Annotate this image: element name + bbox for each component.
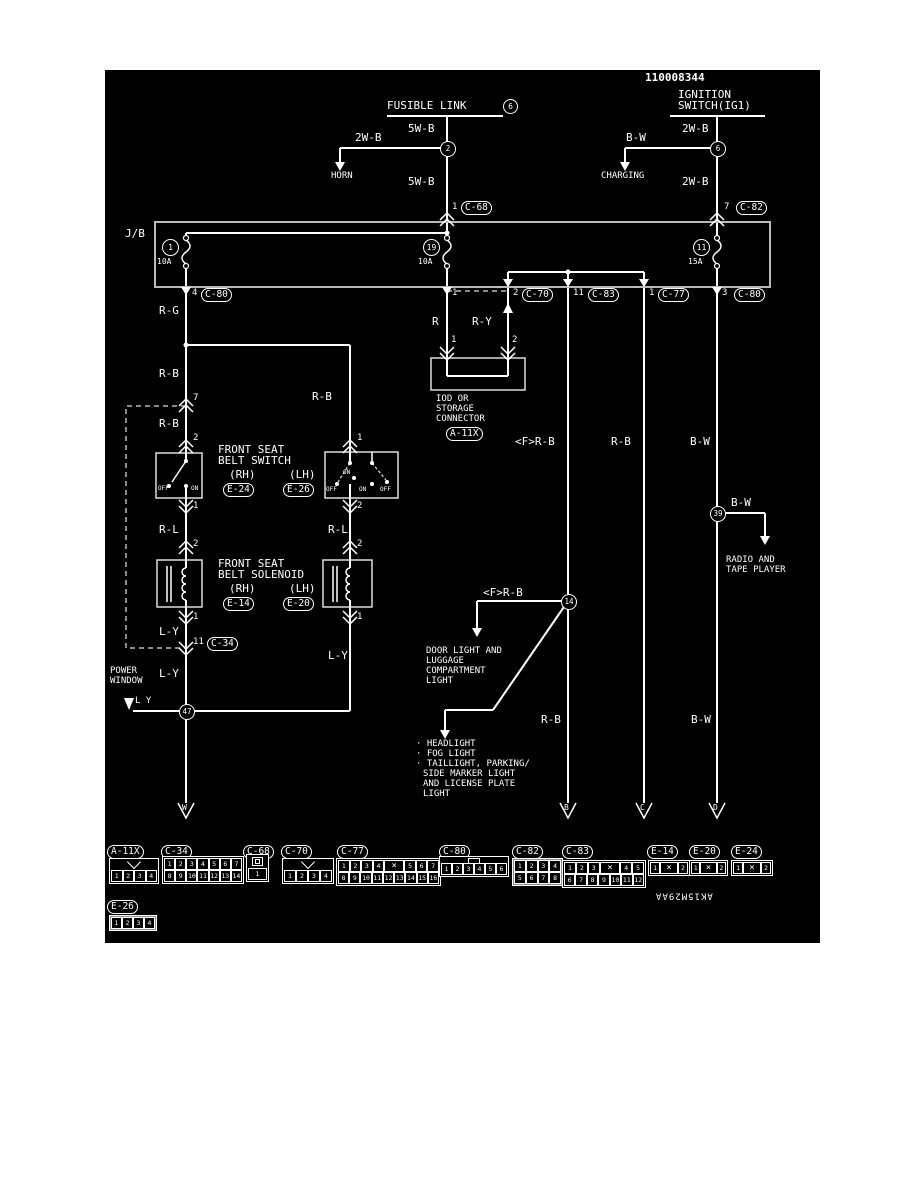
connector-pin: 9 [598,874,609,886]
pinout-label-c83: C-83 [562,845,593,859]
connector-notch [127,855,141,869]
jb-exit-pin-3: 3 [722,289,727,298]
wire-label-r: R [432,316,439,328]
solenoid-rh-pin-in: 2 [193,540,198,549]
connector-pin: 5 [514,872,526,884]
lh-switch-off-1: OFF [326,487,337,493]
jb-bracket [508,272,644,287]
charging-arrow [620,162,630,171]
connector-pin: 16 [428,872,439,884]
connector-keyway: × [384,860,404,872]
wire-label-rl-rh: R-L [159,524,179,536]
connector-pin: 1 [248,868,267,880]
connector-pin: 6 [526,872,538,884]
wire-label-rb-bottom: R-B [541,714,561,726]
connector-pin: 3 [463,863,474,875]
lights-list-6: LIGHT [423,790,450,799]
connector-pin: 4 [474,863,485,875]
pin-7-c82: 7 [724,203,729,212]
connector-pin: 2 [576,862,588,874]
connector-pin: 4 [549,860,561,872]
wire-label-rg: R-G [159,305,179,317]
connector-keyway: × [600,862,621,874]
connector-pin: 9 [175,870,186,882]
connector-pin: 8 [164,870,175,882]
connector-pin: 8 [338,872,349,884]
connector-pin: 6 [416,860,428,872]
pinout-label-c77: C-77 [337,845,368,859]
wire-label-frb-branch: <F>R-B [483,587,523,599]
connector-pin: 11 [621,874,632,886]
connector-pin: 13 [394,872,405,884]
connector-ref-c80-left: C-80 [201,288,232,302]
pinout-label-e24: E-24 [731,845,762,859]
wire-label-2wb-horn: 2W-B [355,132,382,144]
connector-pin: 2 [526,860,538,872]
connector-ref-a11x: A-11X [446,427,483,441]
junction-block-label: J/B [125,228,145,240]
switch-lh-tag: (LH) [289,469,316,481]
jb-exit-pin-2: 2 [513,289,518,298]
wire-label-bw-radio: B-W [731,497,751,509]
inline-pin-7: 7 [193,394,198,403]
pinout-c77: 1234×5678910111213141516 [336,858,441,886]
junction-14: 14 [561,594,577,610]
connector-pin: 3 [133,917,144,929]
solenoid-title-2: BELT SOLENOID [218,569,304,581]
pinout-c80: 123456 [439,856,509,877]
ry-up-arrow [503,303,513,313]
connector-pin: 3 [308,870,320,882]
lh-switch-on-2: ON [359,487,366,493]
connector-ref-e26: E-26 [283,483,314,497]
connector-pin: 13 [220,870,231,882]
wire-label-5wb-2: 5W-B [408,176,435,188]
wire-label-ly-2: L-Y [159,668,179,680]
fuse-1-rating: 10A [157,258,171,266]
pinout-e14: 1×2 [648,860,690,876]
connector-pin: 5 [632,862,644,874]
connector-pin: 8 [549,872,561,884]
page-ref-c: C [640,804,645,812]
connector-pin: 3 [134,870,146,882]
switch-rh-tag: (RH) [229,469,256,481]
connector-ref-e14: E-14 [223,597,254,611]
wire-label-2wb-2: 2W-B [682,176,709,188]
jb-exit-pin-4: 4 [192,289,197,298]
pinout-c68: 1 [246,854,269,882]
connector-pin: 6 [564,874,575,886]
wire-charging-branch [625,148,717,162]
connector-ref-e24: E-24 [223,483,254,497]
connector-face [252,857,263,866]
pinout-e24: 1×2 [731,860,773,876]
connector-pin: 2 [122,917,133,929]
power-window-arrow [124,698,134,710]
connector-pin: 6 [496,863,507,875]
pin-1-c68: 1 [452,203,457,212]
connector-ref-c82: C-82 [736,201,767,215]
connector-pin: 10 [610,874,621,886]
connector-pin: 12 [383,872,394,884]
connector-pin: 2 [123,870,135,882]
pinout-c83: 123×456789101112 [562,860,646,888]
solenoid-rh-pin-out: 1 [193,613,198,622]
fuse11-element [713,240,721,264]
pinout-e26: 1234 [109,915,157,931]
fuse19-element [443,240,451,264]
connector-pin: 1 [564,862,576,874]
power-window-line2: WINDOW [110,677,143,686]
iod-pin-1: 1 [451,336,456,345]
wire-label-2wb-1: 2W-B [682,123,709,135]
door-light-arrow [472,628,482,637]
fuse1-element [182,240,190,264]
connector-ref-c68: C-68 [461,201,492,215]
page-ref-w: W [182,804,187,812]
connector-ref-c77: C-77 [658,288,689,302]
connector-notch [301,855,315,869]
lh-switch-on-1: ON [343,470,350,476]
switch-lh-pin-out: 2 [357,502,362,511]
pinout-c70: 1234 [282,858,334,884]
connector-pin: 3 [538,860,550,872]
connector-pin: 5 [404,860,416,872]
wire-horn-branch [340,148,447,162]
solenoid-rh-tag: (RH) [229,583,256,595]
connector-pin: 1 [164,858,175,870]
connector-pin: 4 [144,917,155,929]
connector-pin: 4 [146,870,158,882]
belt-solenoid-rh-box [157,560,202,607]
horn-label: HORN [331,172,353,181]
junction-47: 47 [179,704,195,720]
connector-pin: 2 [175,858,186,870]
iod-title-3: CONNECTOR [436,415,485,424]
pinout-c82: 12345678 [512,858,563,886]
solenoid-core-rh [167,566,171,602]
page-ref-d: D [713,804,718,812]
pinout-a11x: 1234 [109,858,159,884]
junction-2: 2 [440,141,456,157]
jb-exit-pin-11: 11 [573,289,584,298]
wire-label-bw-top: B-W [690,436,710,448]
bus-junction-dot [445,231,450,236]
fusible-link-number: 6 [503,99,518,114]
switch-rh-pin-out: 1 [193,502,198,511]
connector-pin: 1 [338,860,350,872]
radio-arrow [760,536,770,545]
wire-label-ly-3: L Y [135,697,151,706]
pinout-c34: 1234567891011121314 [162,856,244,884]
radio-line2: TAPE PLAYER [726,566,786,575]
junction-39: 39 [710,506,726,522]
exterior-lights-arrow [440,730,450,739]
wire-label-rb-branch: R-B [312,391,332,403]
connector-pin: 1 [514,860,526,872]
connector-keyway: × [743,862,761,874]
horn-arrow [335,162,345,171]
wire-label-rl-lh: R-L [328,524,348,536]
connector-keyway: × [660,862,678,874]
branch-junction-dot [184,343,189,348]
connector-pin: 5 [485,863,496,875]
iod-pin-2: 2 [512,336,517,345]
connector-pin: 3 [588,862,600,874]
wire-label-rb-top: R-B [611,436,631,448]
pinout-label-c82: C-82 [512,845,543,859]
connector-pin: 15 [417,872,428,884]
rh-switch-on: ON [191,486,198,492]
iod-internal [447,287,508,376]
inline-pin-11: 11 [193,638,204,647]
jb-exit-pin-1b: 1 [649,289,654,298]
door-light-line4: LIGHT [426,677,453,686]
connector-pin: 2 [350,860,362,872]
iod-connector-box [431,358,525,390]
rh-switch-arm [172,453,186,498]
connector-pin: 10 [186,870,197,882]
connector-pin: 4 [197,858,208,870]
wiring-diagram-panel: 110008344 FUSIBLE LINK 6 IGNITION SWITCH… [105,70,820,943]
connector-pin: 1 [733,862,743,874]
connector-ref-e20: E-20 [283,597,314,611]
connector-pin: 4 [620,862,632,874]
connector-pin: 1 [441,863,452,875]
connector-pin: 1 [111,917,122,929]
connector-ref-c83: C-83 [588,288,619,302]
connector-pin: 4 [320,870,332,882]
connector-pin: 14 [405,872,416,884]
connector-pin: 7 [231,858,242,870]
switch-title-2: BELT SWITCH [218,455,291,467]
charging-label: CHARGING [601,172,644,181]
wire-label-5wb-1: 5W-B [408,123,435,135]
connector-pin: 1 [111,870,123,882]
connector-pin: 2 [717,862,726,874]
connector-pin: 10 [360,872,371,884]
solenoid-coil-lh [346,568,350,600]
connector-pin: 2 [296,870,308,882]
connector-pin: 7 [538,872,550,884]
lh-switch-off-2: OFF [380,487,391,493]
switch-rh-pin-in: 2 [193,434,198,443]
fuse-11: 11 [693,239,710,256]
pinout-label-e14: E-14 [647,845,678,859]
wire-label-bw-bottom: B-W [691,714,711,726]
connector-pin: 9 [349,872,360,884]
connector-pin: 2 [678,862,688,874]
solenoid-core-lh [333,566,337,602]
fusible-link-label: FUSIBLE LINK [387,100,466,112]
ignition-switch-line2: SWITCH(IG1) [678,100,751,112]
wire-label-ry: R-Y [472,316,492,328]
fuse-11-rating: 15A [688,258,702,266]
connector-pin: 6 [220,858,231,870]
connector-keyway: × [700,862,716,874]
switch-lh-pin-in: 1 [357,434,362,443]
pinout-e20: 1×2 [689,860,728,876]
solenoid-lh-pin-out: 1 [357,613,362,622]
bracket-junction-dot [566,270,571,275]
connector-pin: 7 [575,874,586,886]
connector-pin: 11 [372,872,383,884]
pinout-label-a11x: A-11X [107,845,144,859]
solenoid-lh-pin-in: 2 [357,540,362,549]
connector-pin: 4 [373,860,385,872]
pinout-label-e20: E-20 [689,845,720,859]
wire-label-ly-1: L-Y [159,626,179,638]
connector-pin: 1 [691,862,700,874]
page-ref-b: B [564,804,569,812]
connector-pin: 5 [209,858,220,870]
wire-label-rb-2: R-B [159,418,179,430]
rh-switch-off: OFF [158,486,169,492]
wire-label-ly-lh: L-Y [328,650,348,662]
connector-ref-c34: C-34 [207,637,238,651]
connector-ref-c70: C-70 [522,288,553,302]
junction-6: 6 [710,141,726,157]
pinout-label-e26: E-26 [107,900,138,914]
connector-pin: 2 [452,863,463,875]
wire-door-branch [477,601,568,628]
connector-pin: 11 [197,870,208,882]
solenoid-coil-rh [182,568,186,600]
connector-pin: 14 [231,870,242,882]
connector-ref-c80-right: C-80 [734,288,765,302]
wire-label-rb-1: R-B [159,368,179,380]
connector-pin: 1 [284,870,296,882]
fuse-1: 1 [162,239,179,256]
connector-pin: 12 [633,874,644,886]
fuse-19-rating: 10A [418,258,432,266]
connector-pin: 3 [186,858,197,870]
jb-exit-pin-1: 1 [452,289,457,298]
wire-label-bw-charging: B-W [626,132,646,144]
connector-pin: 2 [761,862,771,874]
solenoid-lh-tag: (LH) [289,583,316,595]
wire-label-frb-top: <F>R-B [515,436,555,448]
doc-number: 110008344 [645,72,705,84]
connector-pin: 7 [427,860,439,872]
connector-pin: 3 [361,860,373,872]
connector-pin: 1 [650,862,660,874]
fuse-19: 19 [423,239,440,256]
drawing-code: AK15M29AA [655,890,713,899]
connector-pin: 8 [587,874,598,886]
connector-pin: 12 [209,870,220,882]
junction-block-box [155,222,770,287]
